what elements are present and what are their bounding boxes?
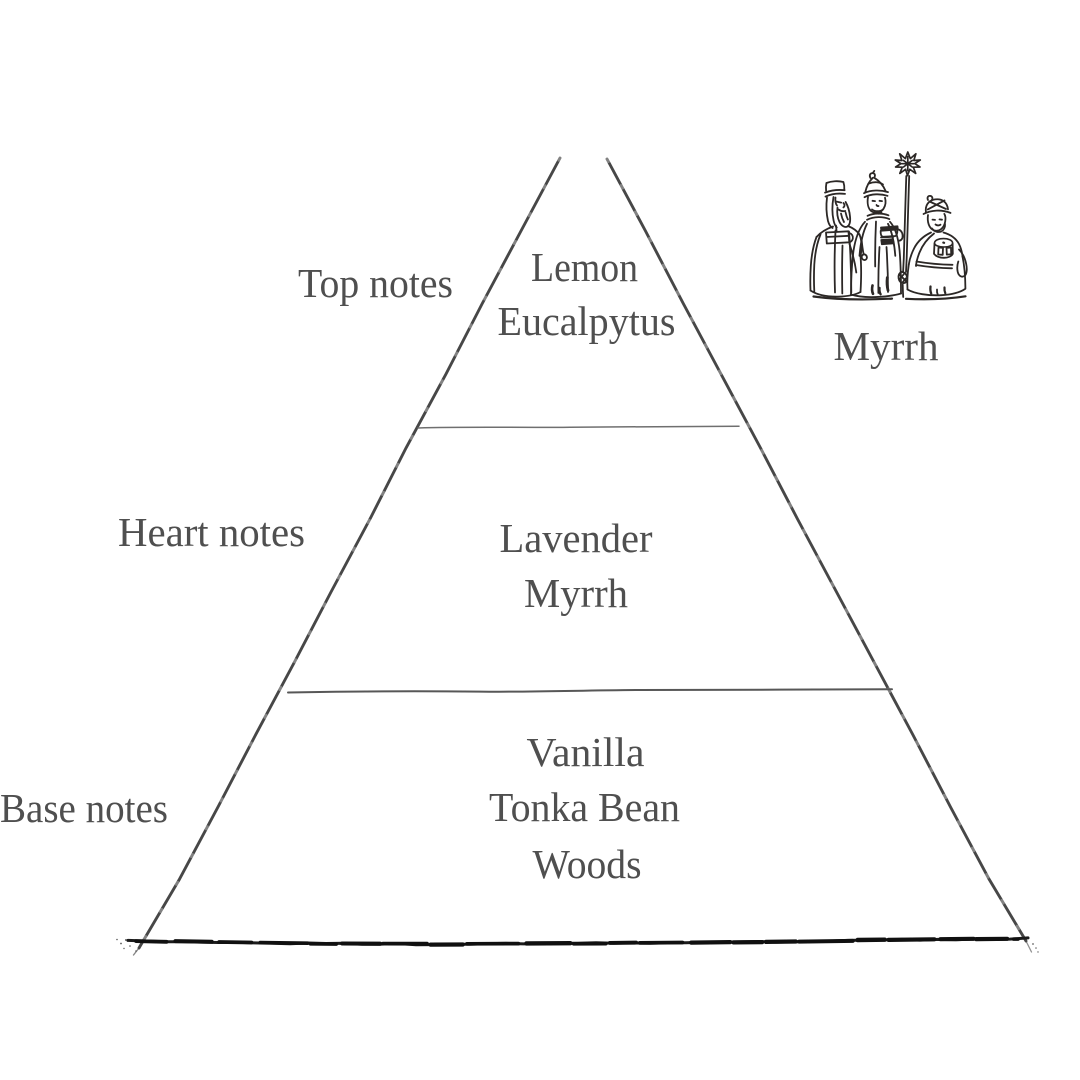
- svg-text:Tonka Bean: Tonka Bean: [489, 784, 680, 830]
- svg-text:Top notes: Top notes: [298, 260, 453, 306]
- svg-text:Myrrh: Myrrh: [524, 570, 628, 616]
- svg-text:Eucalpytus: Eucalpytus: [498, 298, 676, 344]
- svg-text:Woods: Woods: [533, 841, 642, 887]
- svg-text:Myrrh: Myrrh: [834, 323, 939, 369]
- svg-text:Lavender: Lavender: [500, 515, 653, 561]
- svg-text:Lemon: Lemon: [531, 244, 638, 290]
- svg-text:Heart notes: Heart notes: [118, 509, 305, 555]
- svg-text:Vanilla: Vanilla: [527, 729, 645, 775]
- svg-text:Base notes: Base notes: [0, 785, 168, 831]
